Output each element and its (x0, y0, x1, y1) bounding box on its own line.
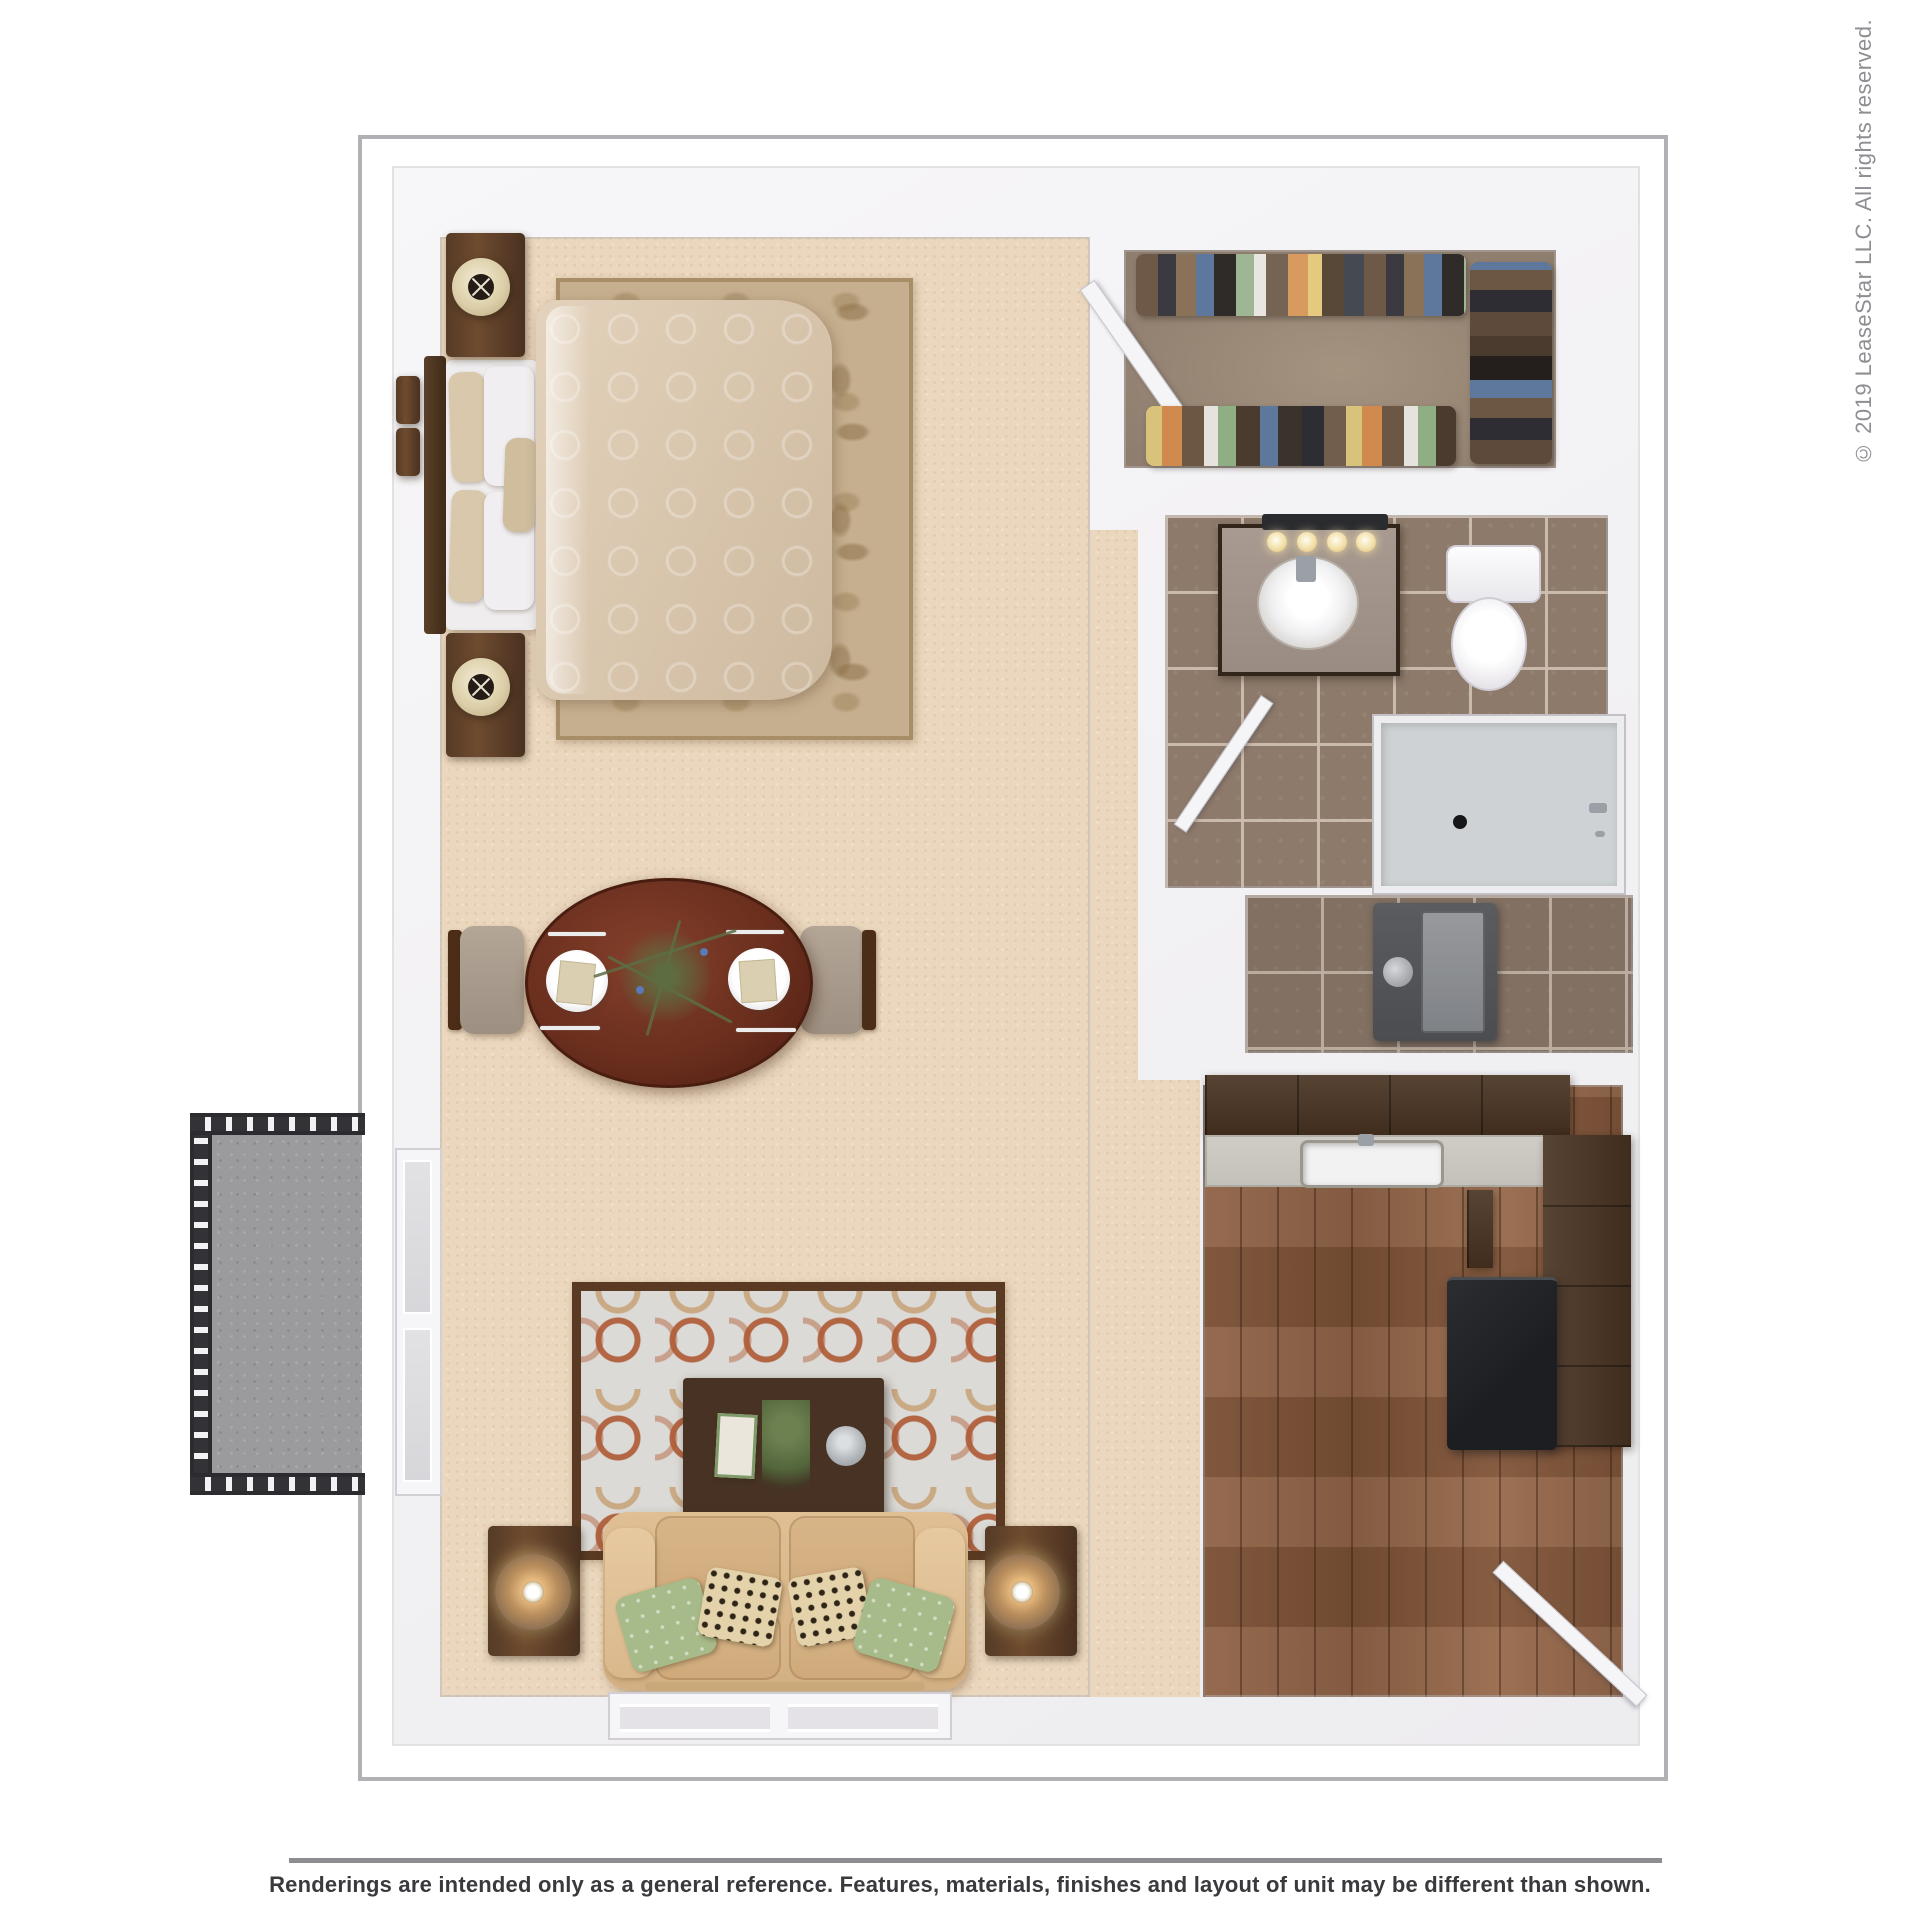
water-heater-panel (1421, 911, 1485, 1033)
bed-pillow-beige (448, 371, 488, 482)
footer-disclaimer: Renderings are intended only as a genera… (0, 1872, 1920, 1898)
vanity-light-bulb (1327, 532, 1347, 552)
shower-stall (1374, 716, 1624, 893)
hanging-clothes-row (1146, 406, 1456, 466)
napkin (739, 959, 778, 1003)
water-heater-valve (1383, 957, 1413, 987)
toilet-bowl (1451, 597, 1527, 691)
fork-knife (540, 1026, 600, 1030)
balcony-railing-bottom (190, 1473, 365, 1495)
hanging-clothes-row (1136, 254, 1466, 316)
coffee-table-book (714, 1413, 757, 1479)
dining-nook-floor (1090, 1080, 1200, 1697)
vanity-light-bulb (1356, 532, 1376, 552)
living-room-window (608, 1692, 952, 1740)
balcony-railing-left (190, 1113, 212, 1495)
vanity-light-bulb (1267, 532, 1287, 552)
bed-headboard (424, 356, 446, 634)
copyright-watermark: © 2019 LeaseStar LLC. All rights reserve… (1851, 26, 1877, 466)
balcony-railing-top (190, 1113, 365, 1135)
coffee-table-plant (762, 1400, 810, 1498)
hallway-floor (1090, 530, 1138, 1080)
table-lamp (452, 658, 510, 716)
kitchen-faucet (1358, 1134, 1374, 1146)
shower-drain (1453, 815, 1467, 829)
fork-knife (548, 932, 606, 936)
vanity-light-bulb (1297, 532, 1317, 552)
shower-head (1589, 803, 1607, 813)
kitchen-sink (1300, 1140, 1444, 1188)
lamp-finial (1011, 1581, 1033, 1603)
shower-handle (1595, 831, 1605, 837)
kitchen-base-cabinet (1467, 1190, 1493, 1268)
centerpiece-flower (636, 986, 644, 994)
wall-art-panel (396, 428, 420, 476)
dining-chair-back (862, 930, 876, 1030)
sliding-door-glass-lower (403, 1328, 432, 1482)
bed-comforter (536, 300, 832, 700)
sofa-front-edge (645, 1682, 925, 1691)
dining-chair (460, 926, 524, 1034)
table-lamp (452, 258, 510, 316)
centerpiece-flower (700, 948, 708, 956)
sink-faucet (1296, 556, 1316, 582)
refrigerator (1447, 1277, 1557, 1450)
floor-plan-page: © 2019 LeaseStar LLC. All rights reserve… (0, 0, 1920, 1920)
fork-knife (736, 1028, 796, 1032)
comforter-fold (546, 306, 590, 694)
balcony-floor (212, 1135, 362, 1473)
vanity-light-bar (1262, 514, 1388, 530)
bed-accent-pillow (502, 437, 537, 532)
window-pane (788, 1704, 938, 1732)
balcony-sliding-door (395, 1148, 442, 1496)
accent-lamp (495, 1554, 571, 1630)
wall-art-panel (396, 376, 420, 424)
water-heater (1373, 903, 1497, 1041)
bed-pillow-beige (448, 489, 488, 602)
lamp-finial (522, 1581, 544, 1603)
decor-bowl (826, 1426, 866, 1466)
kitchen-upper-cabinets (1205, 1075, 1570, 1135)
napkin (556, 960, 596, 1006)
accent-lamp (984, 1554, 1060, 1630)
throw-pillow-leopard (696, 1566, 783, 1648)
sliding-door-glass-upper (403, 1160, 432, 1314)
window-pane (620, 1704, 770, 1732)
footer-divider (289, 1858, 1662, 1863)
toilet-tank (1446, 545, 1541, 603)
hanging-clothes-column (1470, 262, 1552, 464)
